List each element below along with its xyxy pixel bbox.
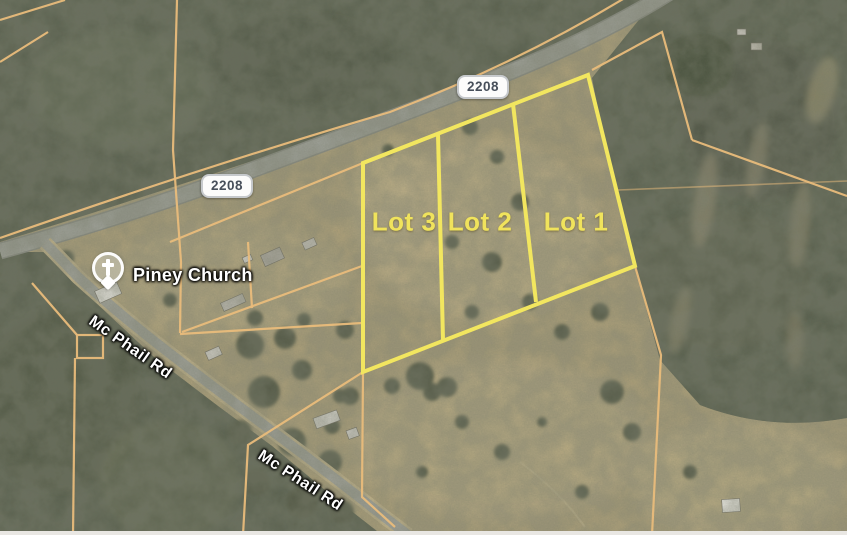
church-cross-icon	[106, 259, 110, 276]
street-label-mcphail-lower: Mc Phail Rd	[254, 447, 345, 515]
lot-label-1: Lot 1	[544, 207, 609, 238]
label-overlay: 2208 2208 Piney Church Mc Phail Rd Mc Ph…	[0, 0, 847, 535]
church-pin-icon	[92, 252, 124, 284]
lot-label-3: Lot 3	[372, 207, 437, 238]
highway-badge-2208-west: 2208	[201, 174, 253, 198]
street-label-mcphail-upper: Mc Phail Rd	[85, 313, 175, 384]
highway-badge-2208-east: 2208	[457, 75, 509, 99]
lot-label-2: Lot 2	[448, 207, 513, 238]
place-label-piney-church: Piney Church	[133, 265, 253, 286]
map-container: 2208 2208 Piney Church Mc Phail Rd Mc Ph…	[0, 0, 847, 535]
image-edge-bar	[0, 531, 847, 535]
church-cross-icon	[102, 263, 114, 267]
pin-tip	[100, 275, 116, 291]
